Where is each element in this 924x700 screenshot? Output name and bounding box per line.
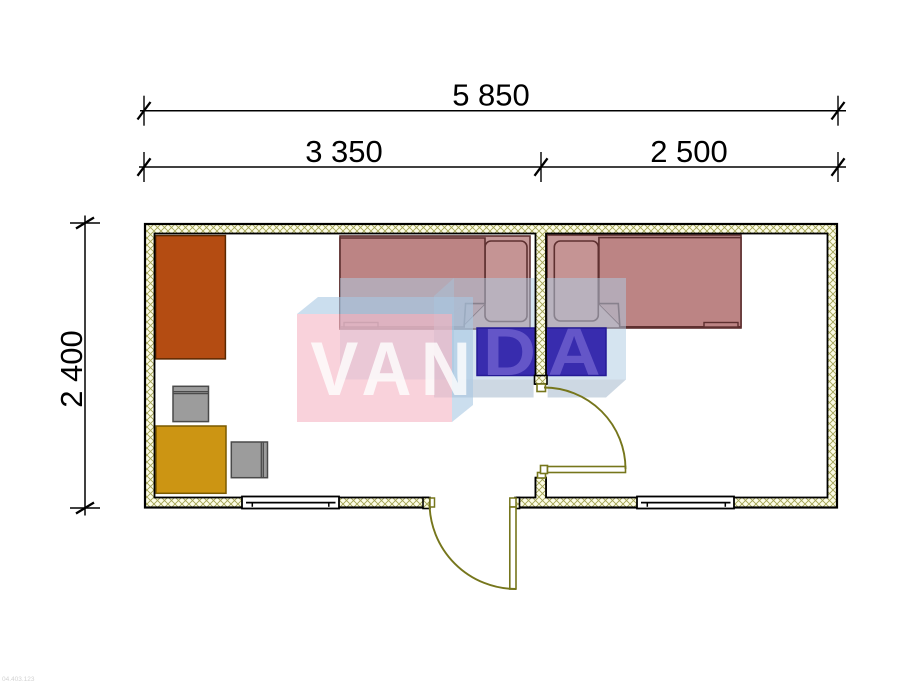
svg-text:A: A (548, 315, 601, 390)
svg-text:04.403.123: 04.403.123 (2, 676, 35, 683)
svg-text:3 350: 3 350 (305, 134, 383, 169)
svg-text:2 400: 2 400 (54, 330, 89, 408)
svg-text:2 500: 2 500 (650, 134, 728, 169)
svg-text:N: N (421, 327, 471, 412)
svg-text:A: A (362, 327, 412, 412)
svg-text:V: V (310, 327, 358, 412)
svg-text:5 850: 5 850 (452, 78, 530, 113)
svg-text:D: D (483, 315, 536, 390)
